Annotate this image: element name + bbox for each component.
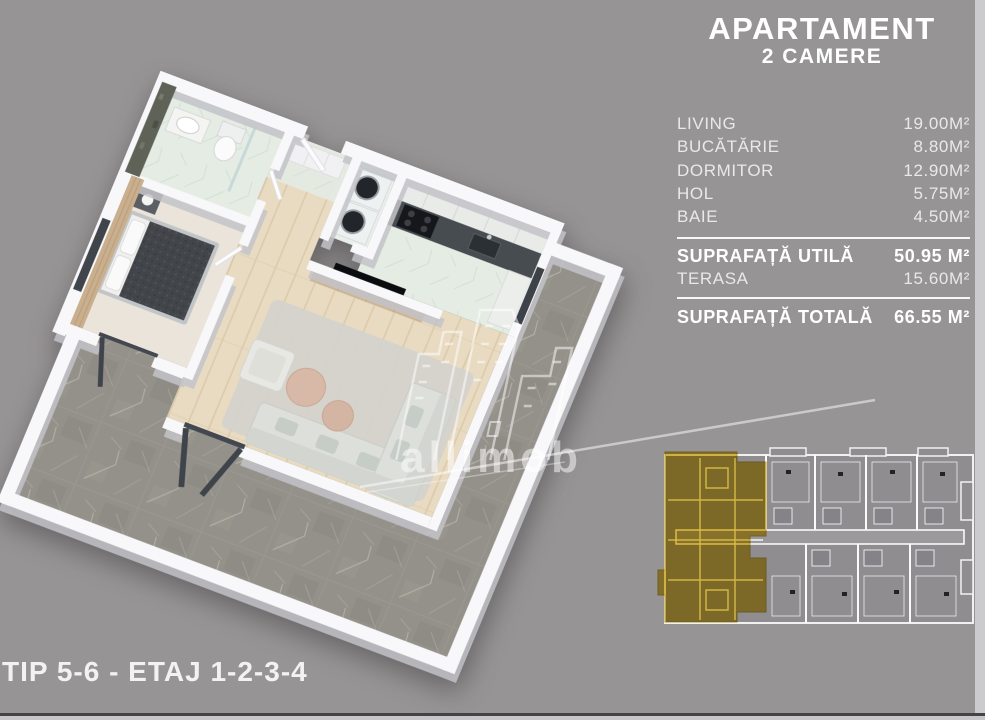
summary-area: 15.60M²	[903, 269, 970, 289]
divider-bottom	[677, 297, 970, 299]
room-row-baie: BAIE 4.50M²	[677, 205, 970, 228]
summary-utila: SUPRAFAȚĂ UTILĂ 50.95 M²	[677, 246, 970, 267]
highlighted-unit-overlay	[658, 452, 766, 622]
panel-title: APARTAMENT 2 CAMERE	[668, 12, 976, 68]
right-edge-strip	[975, 0, 985, 720]
room-area: 12.90M²	[903, 159, 970, 182]
title-line1: APARTAMENT	[668, 12, 976, 45]
room-label: DORMITOR	[677, 159, 774, 182]
apartment-flyer: allimob APARTAMENT 2 CAMERE LIVING 19.00…	[0, 0, 985, 720]
room-row-dormitor: DORMITOR 12.90M²	[677, 159, 970, 182]
type-etaj-label: TIP 5-6 - ETAJ 1-2-3-4	[2, 656, 308, 688]
room-area: 19.00M²	[903, 112, 970, 135]
room-row-hol: HOL 5.75M²	[677, 182, 970, 205]
summary-totala: SUPRAFAȚĂ TOTALĂ 66.55 M²	[677, 307, 970, 328]
divider-top	[677, 237, 970, 239]
summary-terasa: TERASA 15.60M²	[677, 269, 970, 289]
summary-label: SUPRAFAȚĂ TOTALĂ	[677, 307, 873, 328]
summary-area: 66.55 M²	[894, 307, 970, 328]
room-label: LIVING	[677, 112, 736, 135]
room-area: 4.50M²	[913, 205, 970, 228]
title-line2: 2 CAMERE	[668, 45, 976, 68]
room-row-living: LIVING 19.00M²	[677, 112, 970, 135]
summary-label: SUPRAFAȚĂ UTILĂ	[677, 246, 854, 267]
room-label: HOL	[677, 182, 714, 205]
room-row-bucatarie: BUCĂTĂRIE 8.80M²	[677, 135, 970, 158]
scene-graphics: allimob	[0, 0, 985, 720]
room-area-list: LIVING 19.00M² BUCĂTĂRIE 8.80M² DORMITOR…	[677, 112, 970, 228]
room-area: 8.80M²	[913, 135, 970, 158]
summary-area: 50.95 M²	[894, 246, 970, 267]
room-label: BUCĂTĂRIE	[677, 135, 780, 158]
watermark-brand: allimob	[400, 433, 582, 482]
site-plan	[658, 448, 973, 623]
summary-label: TERASA	[677, 269, 749, 289]
room-area: 5.75M²	[913, 182, 970, 205]
bottom-border-light	[0, 716, 985, 720]
room-label: BAIE	[677, 205, 718, 228]
